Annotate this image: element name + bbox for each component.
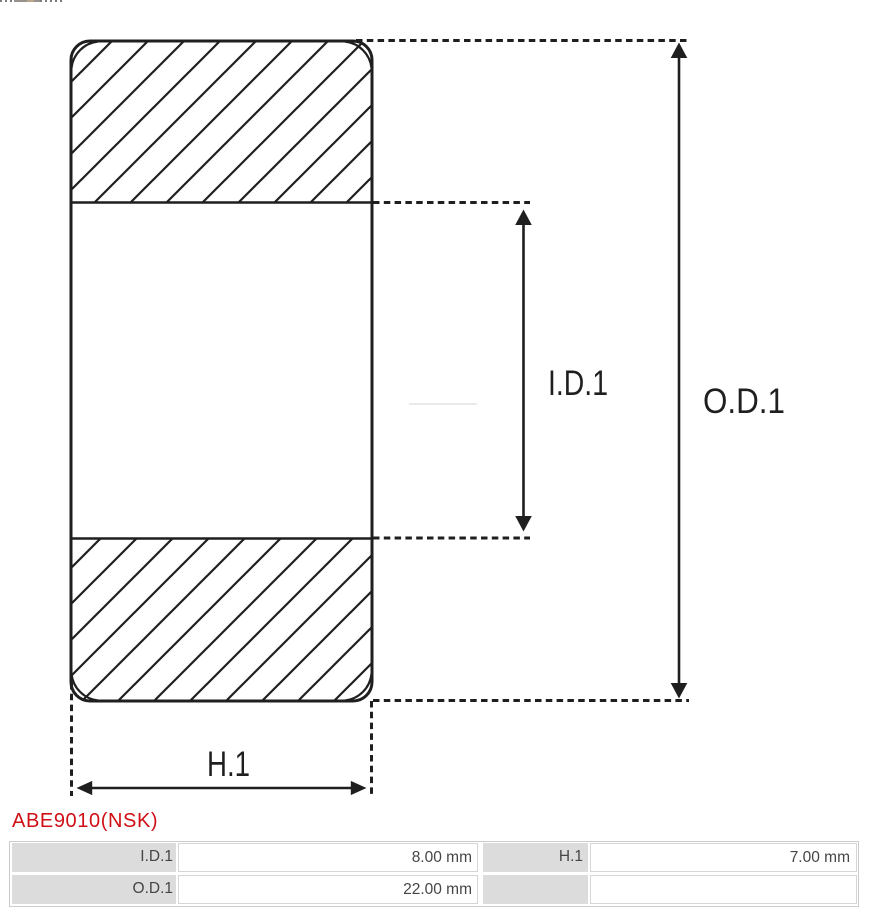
svg-text:I.D.1: I.D.1: [548, 364, 608, 403]
svg-text:O.D.1: O.D.1: [703, 382, 785, 421]
svg-text:H.1: H.1: [207, 745, 250, 784]
